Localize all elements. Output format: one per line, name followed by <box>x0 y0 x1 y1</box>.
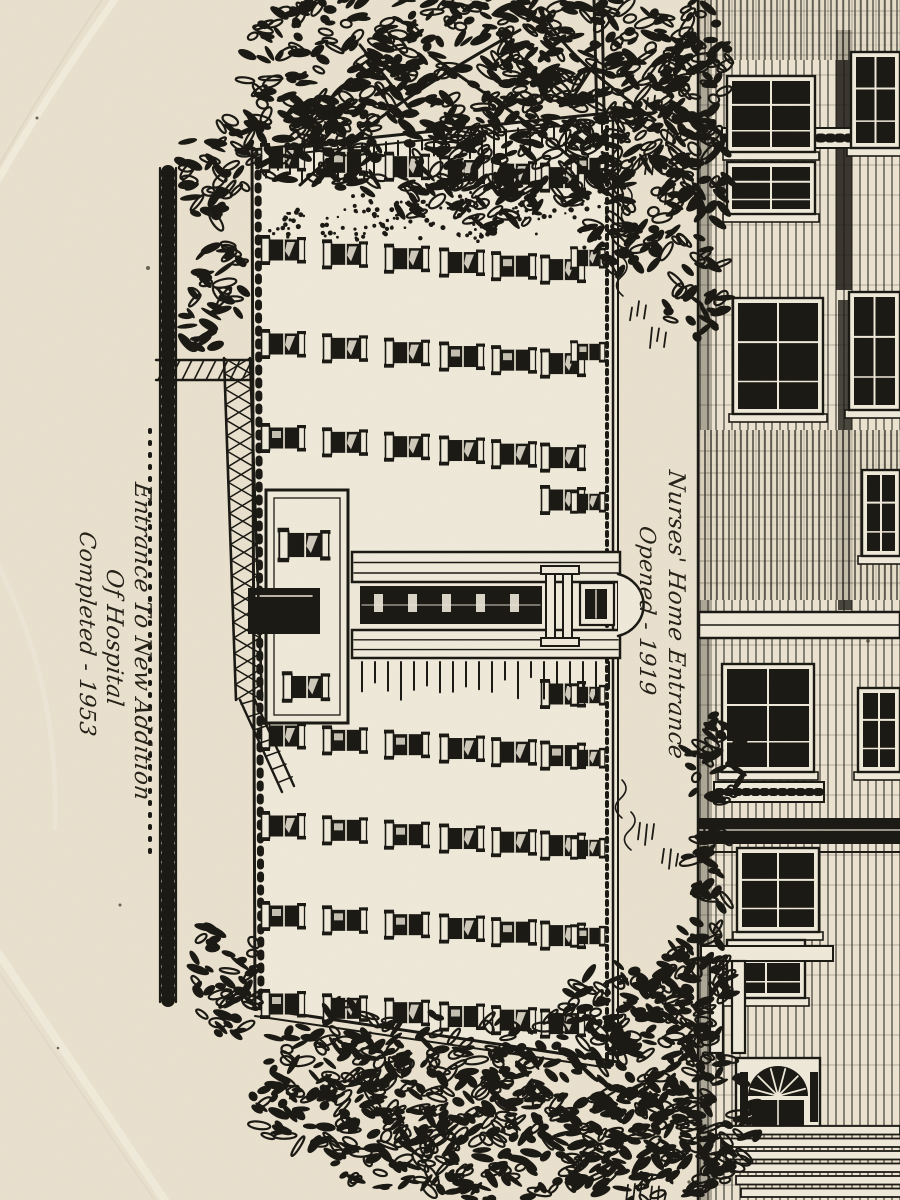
photo-grain <box>0 0 900 1200</box>
plate-engraving-scene: Entrance To New Addition Of Hospital Com… <box>0 0 900 1200</box>
plate-photo: Entrance To New Addition Of Hospital Com… <box>0 0 900 1200</box>
